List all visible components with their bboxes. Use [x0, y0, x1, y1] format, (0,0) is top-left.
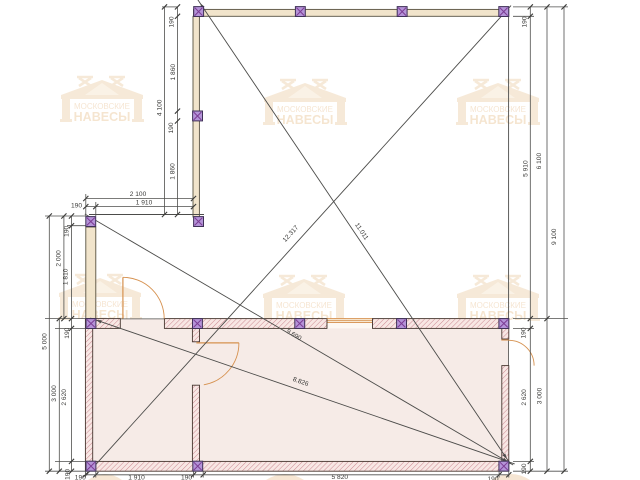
svg-text:1 810: 1 810 [62, 268, 69, 285]
svg-text:190: 190 [522, 16, 529, 27]
svg-text:190: 190 [64, 327, 71, 338]
svg-text:190: 190 [521, 463, 528, 474]
svg-text:1 860: 1 860 [170, 163, 177, 180]
svg-text:5 000: 5 000 [41, 333, 48, 350]
svg-text:2 000: 2 000 [56, 250, 63, 267]
svg-text:2 620: 2 620 [61, 389, 68, 406]
svg-text:190: 190 [65, 469, 72, 480]
svg-text:3 000: 3 000 [51, 385, 58, 402]
svg-text:5 910: 5 910 [523, 160, 530, 177]
svg-text:190: 190 [181, 475, 192, 480]
svg-text:3 000: 3 000 [537, 387, 544, 404]
svg-text:190: 190 [71, 202, 82, 209]
svg-text:190: 190 [64, 225, 71, 236]
svg-text:2 620: 2 620 [521, 389, 528, 406]
svg-text:6 100: 6 100 [536, 153, 543, 170]
svg-text:9 100: 9 100 [551, 228, 558, 245]
svg-text:5 820: 5 820 [332, 474, 349, 480]
svg-text:190: 190 [168, 16, 175, 27]
svg-text:1 910: 1 910 [136, 199, 153, 206]
svg-text:190: 190 [487, 476, 498, 480]
svg-text:2 100: 2 100 [130, 191, 147, 198]
svg-text:1 910: 1 910 [128, 475, 145, 480]
svg-text:190: 190 [75, 475, 86, 480]
svg-text:190: 190 [168, 122, 175, 133]
svg-text:190: 190 [521, 327, 528, 338]
svg-text:4 100: 4 100 [157, 99, 164, 116]
svg-text:1 860: 1 860 [170, 64, 177, 81]
